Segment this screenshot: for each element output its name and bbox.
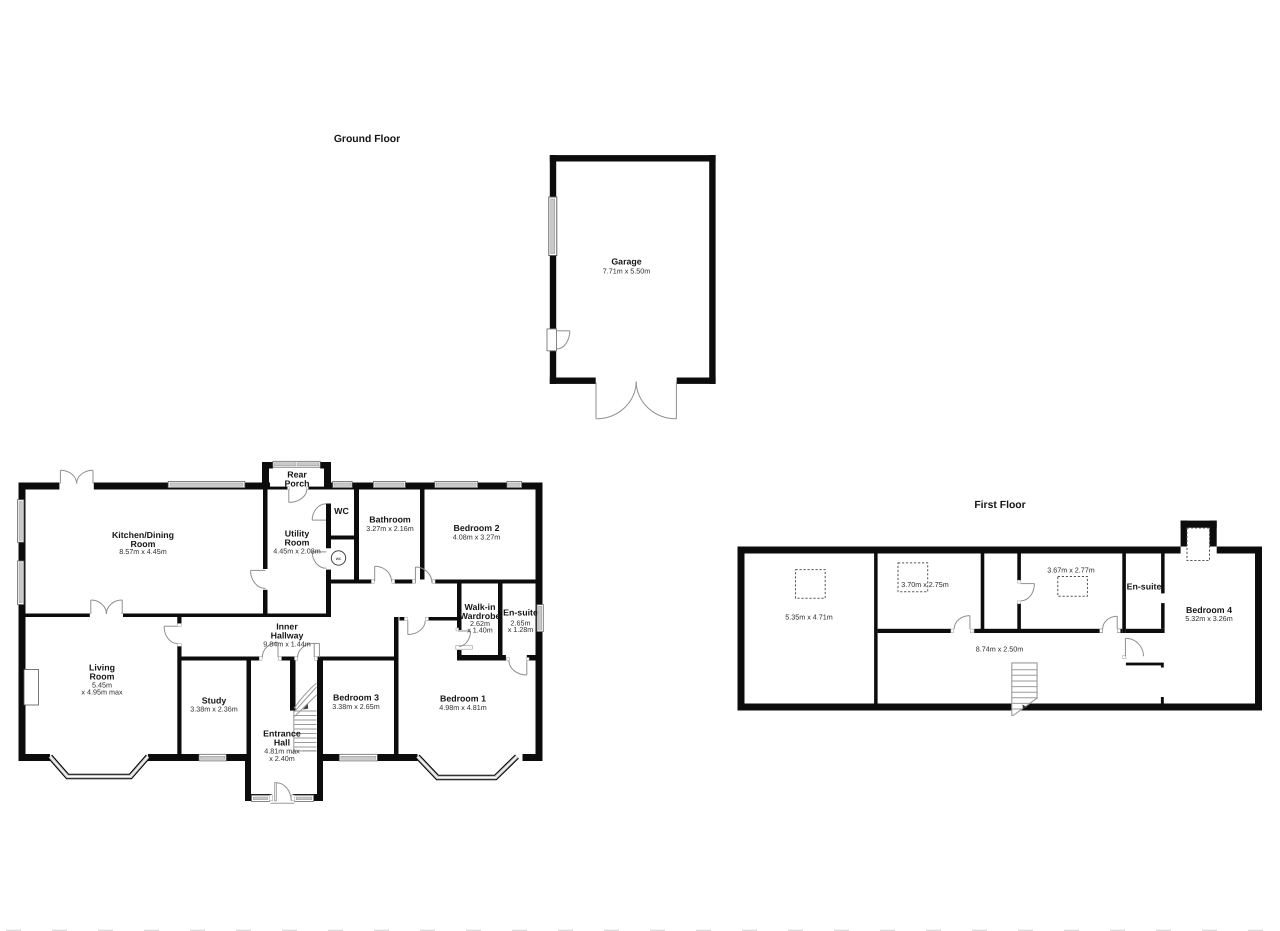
svg-text:Garage: Garage	[611, 257, 641, 267]
svg-text:En-suite: En-suite	[503, 608, 538, 618]
svg-text:Porch: Porch	[285, 479, 310, 489]
svg-text:3.27m x 2.16m: 3.27m x 2.16m	[366, 524, 414, 533]
svg-text:3.38m x 2.36m: 3.38m x 2.36m	[190, 705, 238, 714]
svg-text:5.32m x 3.26m: 5.32m x 3.26m	[1185, 614, 1233, 623]
svg-text:3.38m x 2.65m: 3.38m x 2.65m	[332, 702, 380, 711]
svg-text:En-suite: En-suite	[1127, 582, 1162, 592]
svg-text:Bedroom 3: Bedroom 3	[333, 693, 379, 703]
svg-text:First Floor: First Floor	[974, 500, 1025, 511]
svg-text:Ground Floor: Ground Floor	[334, 134, 400, 145]
svg-text:7.71m x 5.50m: 7.71m x 5.50m	[603, 267, 651, 276]
svg-text:wc: wc	[336, 556, 342, 561]
svg-text:3.70m x 2.75m: 3.70m x 2.75m	[901, 580, 949, 589]
svg-text:8.74m x 2.50m: 8.74m x 2.50m	[976, 645, 1024, 654]
svg-text:x 1.28m: x 1.28m	[508, 625, 534, 634]
svg-text:x 1.40m: x 1.40m	[467, 626, 493, 635]
svg-text:Bedroom 1: Bedroom 1	[440, 694, 486, 704]
svg-text:x 2.40m: x 2.40m	[269, 754, 295, 763]
svg-text:4.08m x 3.27m: 4.08m x 3.27m	[453, 533, 501, 542]
svg-text:5.35m x 4.71m: 5.35m x 4.71m	[785, 613, 833, 622]
svg-text:9.84m x 1.44m: 9.84m x 1.44m	[263, 640, 311, 649]
svg-text:4.98m x 4.81m: 4.98m x 4.81m	[439, 703, 487, 712]
svg-text:8.57m x 4.45m: 8.57m x 4.45m	[119, 547, 167, 556]
svg-text:Bedroom 2: Bedroom 2	[454, 523, 500, 533]
svg-text:x 4.95m max: x 4.95m max	[81, 688, 123, 697]
svg-text:Bathroom: Bathroom	[369, 515, 411, 525]
svg-text:3.67m x 2.77m: 3.67m x 2.77m	[1047, 566, 1095, 575]
svg-text:4.45m x 2.08m: 4.45m x 2.08m	[273, 547, 321, 556]
svg-text:WC: WC	[334, 506, 349, 516]
